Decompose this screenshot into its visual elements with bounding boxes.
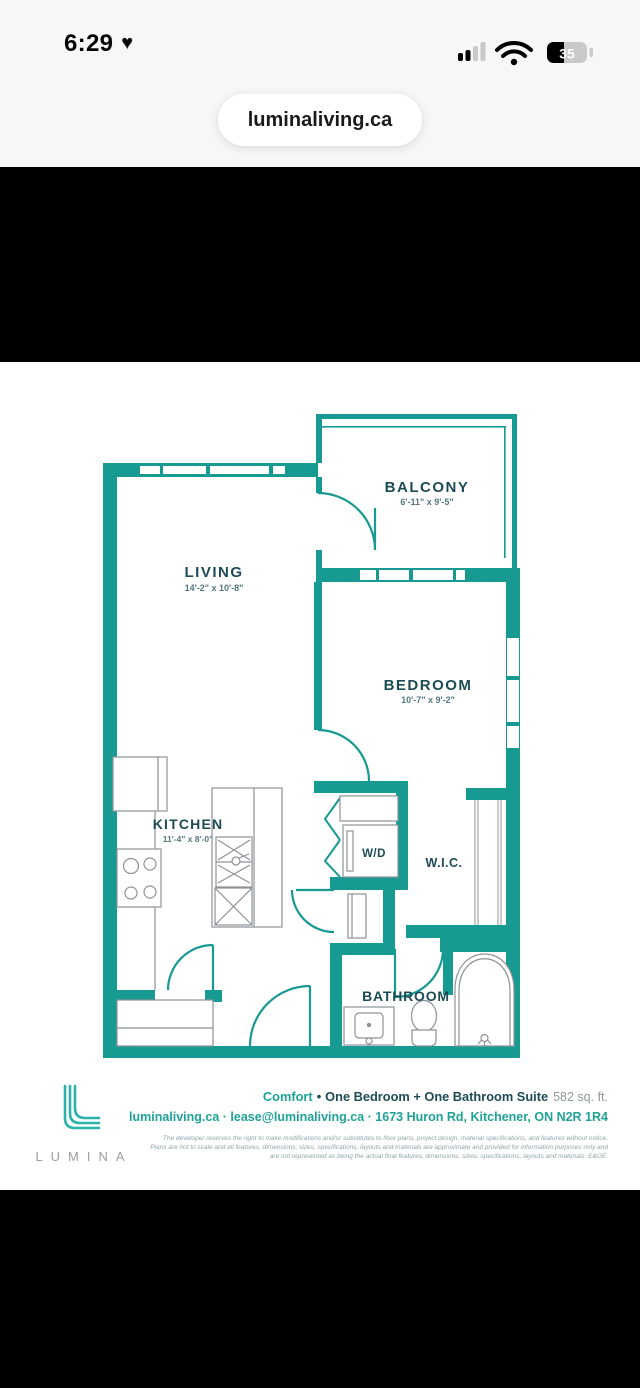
suite-summary: Comfort•One Bedroom + One Bathroom Suite… [128, 1089, 608, 1104]
suite-type: One Bedroom + One Bathroom Suite [325, 1089, 548, 1104]
bedroom-label: BEDROOM [384, 677, 473, 694]
entry-door [250, 986, 310, 1046]
toilet-icon [412, 1001, 437, 1047]
lumina-logo: LUMINA [25, 1080, 135, 1164]
battery-percent: 35 [559, 46, 575, 62]
battery-icon: 35 [547, 42, 593, 63]
wic-label: W.I.C. [425, 856, 462, 870]
url-text: luminaliving.ca [248, 109, 392, 132]
linen-closet-door [292, 890, 334, 932]
bathtub-icon [455, 954, 514, 1046]
separator-dot: • [317, 1089, 321, 1104]
balcony-label: BALCONY [385, 479, 470, 496]
heart-icon: ♥ [121, 32, 133, 55]
url-bar[interactable]: luminaliving.ca [218, 94, 422, 146]
bedroom-dims: 10'-7" x 9'-2" [401, 695, 455, 705]
plan-name: Comfort [263, 1089, 313, 1104]
balcony-dims: 6'-11" x 9'-5" [400, 497, 453, 507]
walls [103, 414, 520, 1058]
status-bar: 6:29 ♥ 35 [0, 26, 640, 62]
wifi-icon [497, 43, 531, 65]
disclaimer: The developer reserves the right to make… [128, 1134, 608, 1161]
clock: 6:29 [64, 30, 113, 58]
letterbox-top [0, 167, 640, 362]
kitchen-label: KITCHEN [153, 816, 224, 832]
lumina-wordmark: LUMINA [25, 1149, 135, 1164]
lumina-logo-icon [25, 1080, 135, 1142]
signal-bars-icon [458, 42, 486, 61]
kitchen-island [212, 788, 282, 927]
bathroom-label: BATHROOM [362, 988, 450, 1004]
footer-text: Comfort•One Bedroom + One Bathroom Suite… [128, 1089, 608, 1161]
contact-line: luminaliving.ca · lease@luminaliving.ca … [128, 1110, 608, 1124]
fixtures [113, 757, 514, 1046]
balcony-door [318, 493, 375, 550]
floor-plan-image[interactable]: LIVING 14'-2" x 10'-8" BALCONY 6'-11" x … [0, 362, 640, 1190]
bathroom-sink-icon [344, 1007, 394, 1046]
bedroom-door [318, 730, 369, 781]
wic-shelves [475, 800, 501, 925]
kitchen-dims: 11'-4" x 8'-0" [163, 834, 213, 844]
browser-header: 6:29 ♥ 35 luminaliving.ca [0, 0, 640, 167]
laundry-closet [340, 796, 398, 877]
status-icons: 35 [440, 26, 606, 70]
windows [140, 466, 519, 748]
wd-label: W/D [362, 848, 386, 860]
entry-closet [117, 1000, 213, 1046]
suite-area: 582 sq. ft. [553, 1090, 608, 1104]
bifold-doors [325, 798, 340, 877]
linen-shelves [348, 894, 366, 938]
living-room-label: LIVING [184, 564, 243, 581]
entry-closet-door [168, 945, 213, 990]
stove-icon [117, 849, 161, 907]
fridge-icon [113, 757, 167, 811]
floor-plan-drawing: LIVING 14'-2" x 10'-8" BALCONY 6'-11" x … [0, 362, 640, 1190]
living-room-dims: 14'-2" x 10'-8" [185, 583, 244, 593]
